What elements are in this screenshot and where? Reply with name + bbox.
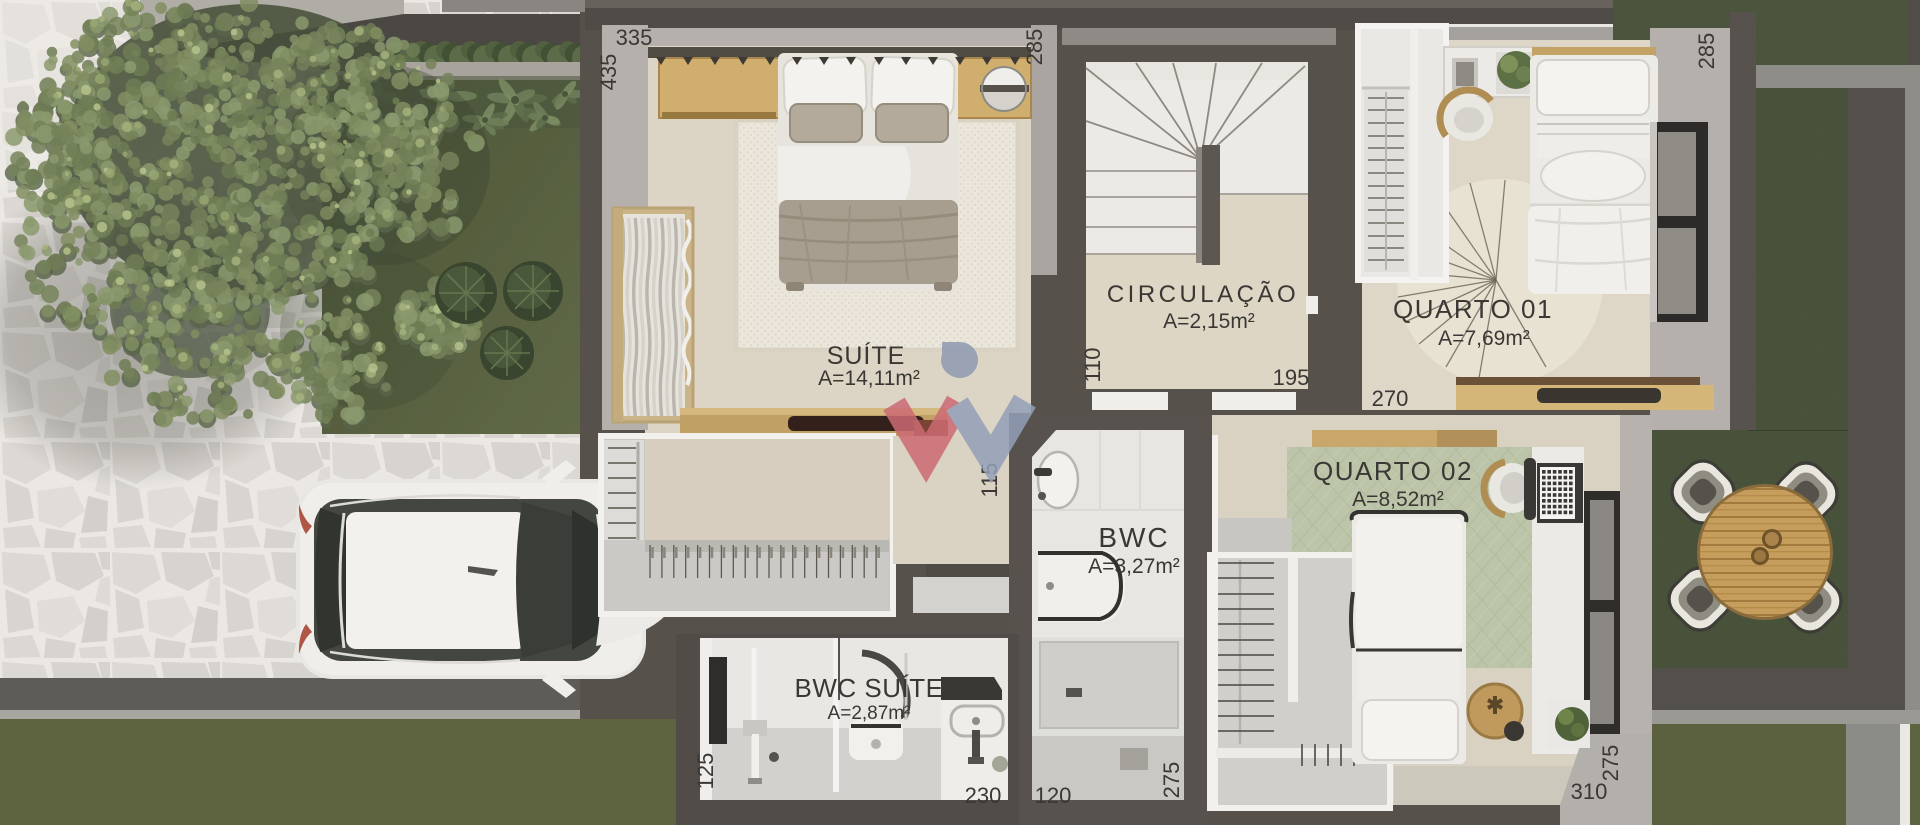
- svg-text:A=7,69m²: A=7,69m²: [1438, 327, 1530, 350]
- svg-text:QUARTO 01: QUARTO 01: [1393, 294, 1553, 324]
- svg-text:BWC SUÍTE: BWC SUÍTE: [795, 673, 944, 703]
- svg-text:285: 285: [1694, 33, 1719, 70]
- svg-text:A=2,87m²: A=2,87m²: [828, 703, 911, 724]
- svg-text:A=2,15m²: A=2,15m²: [1163, 310, 1255, 333]
- svg-text:QUARTO 02: QUARTO 02: [1313, 456, 1473, 486]
- svg-text:310: 310: [1571, 779, 1608, 804]
- svg-text:120: 120: [1035, 783, 1072, 808]
- svg-text:275: 275: [1598, 745, 1623, 782]
- svg-text:BWC: BWC: [1098, 522, 1169, 553]
- svg-text:275: 275: [1159, 762, 1184, 799]
- svg-text:A=14,11m²: A=14,11m²: [818, 367, 920, 390]
- svg-text:270: 270: [1372, 386, 1409, 411]
- svg-text:195: 195: [1273, 365, 1310, 390]
- svg-text:435: 435: [596, 54, 621, 91]
- svg-text:125: 125: [693, 753, 718, 790]
- svg-text:230: 230: [965, 783, 1002, 808]
- svg-text:110: 110: [1080, 347, 1105, 382]
- svg-text:SUÍTE: SUÍTE: [827, 341, 906, 370]
- svg-text:335: 335: [616, 25, 653, 50]
- svg-text:285: 285: [1022, 29, 1047, 66]
- svg-text:CIRCULAÇÃO: CIRCULAÇÃO: [1107, 281, 1299, 308]
- svg-text:A=3,27m²: A=3,27m²: [1088, 555, 1180, 578]
- svg-text:A=8,52m²: A=8,52m²: [1352, 488, 1444, 511]
